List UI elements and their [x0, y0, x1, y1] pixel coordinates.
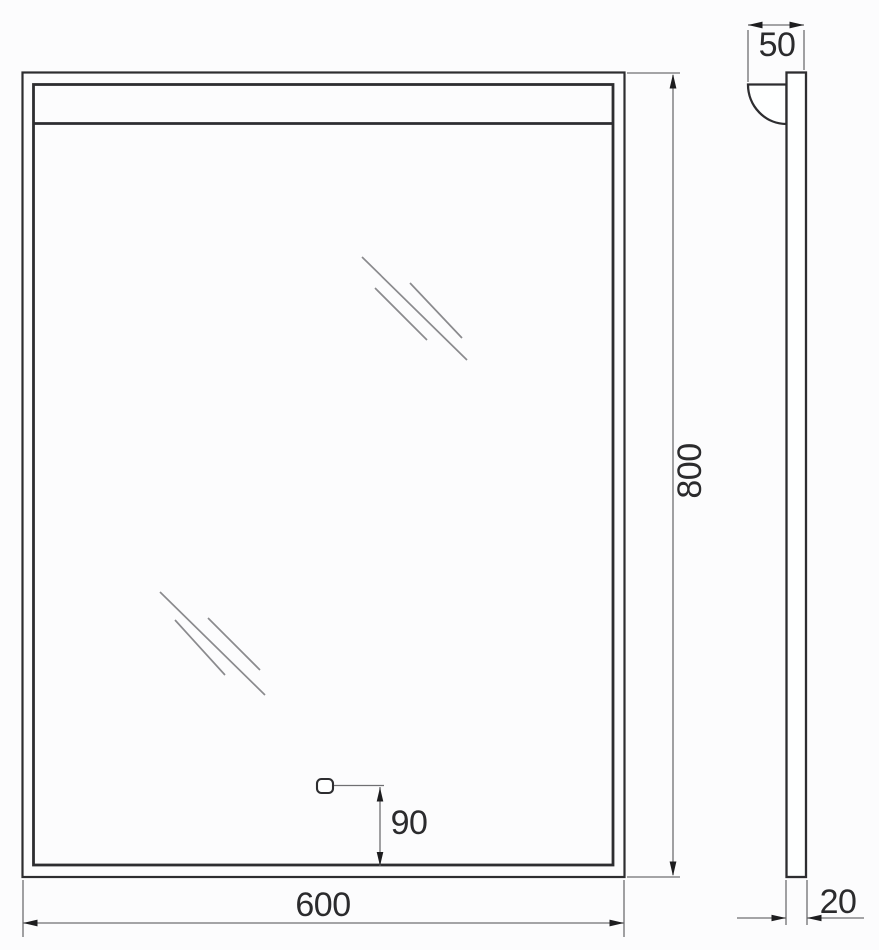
shine-line	[208, 618, 260, 670]
shine-line	[160, 592, 265, 695]
mirror-side-view	[748, 73, 806, 878]
arrowhead-right-icon	[772, 915, 787, 921]
mirror-shine-marks-lower	[160, 592, 265, 695]
light-cove-profile	[748, 85, 787, 125]
drawing-canvas	[0, 0, 879, 950]
arrowhead-right-icon	[610, 920, 625, 927]
dim-label-width: 600	[295, 888, 350, 922]
arrowhead-down-icon	[670, 862, 677, 877]
touch-sensor-icon	[317, 779, 333, 793]
dim-label-height: 800	[673, 443, 707, 498]
arrowhead-up-icon	[670, 74, 677, 89]
arrowhead-left-icon	[23, 920, 38, 927]
dimension-sensor-offset-90	[334, 786, 384, 867]
mirror-inner-frame	[34, 85, 614, 866]
side-panel	[787, 73, 807, 878]
dim-label-depth: 50	[759, 28, 796, 62]
mirror-front-view	[23, 73, 625, 878]
dim-label-thickness: 20	[820, 885, 857, 919]
arrowhead-up-icon	[377, 788, 384, 802]
technical-drawing: 600 800 90 50 20	[0, 0, 879, 950]
mirror-shine-marks-upper	[362, 257, 467, 360]
shine-line	[362, 257, 467, 360]
mirror-outer-frame	[23, 73, 625, 878]
dim-label-sensor-offset: 90	[391, 806, 428, 840]
